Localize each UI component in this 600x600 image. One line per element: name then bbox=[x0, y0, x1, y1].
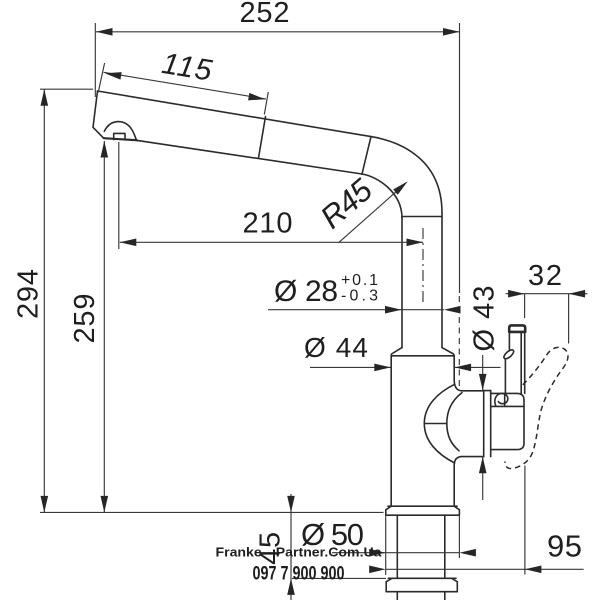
svg-text:294: 294 bbox=[13, 269, 45, 319]
svg-text:Ø 28: Ø 28 bbox=[274, 275, 338, 308]
svg-text:Franke—Partner.Com.Ua: Franke—Partner.Com.Ua bbox=[216, 546, 383, 560]
svg-text:Ø 44: Ø 44 bbox=[304, 332, 368, 363]
svg-text:097 7 900 900: 097 7 900 900 bbox=[253, 563, 345, 584]
svg-text:Ø 43: Ø 43 bbox=[469, 286, 501, 352]
svg-text:95: 95 bbox=[547, 529, 582, 564]
svg-text:-0.3: -0.3 bbox=[341, 287, 378, 304]
svg-text:R45: R45 bbox=[313, 171, 379, 235]
svg-text:259: 259 bbox=[69, 294, 101, 344]
svg-text:252: 252 bbox=[240, 0, 290, 29]
svg-text:115: 115 bbox=[160, 47, 215, 88]
svg-text:32: 32 bbox=[528, 260, 562, 292]
svg-text:210: 210 bbox=[243, 208, 293, 240]
